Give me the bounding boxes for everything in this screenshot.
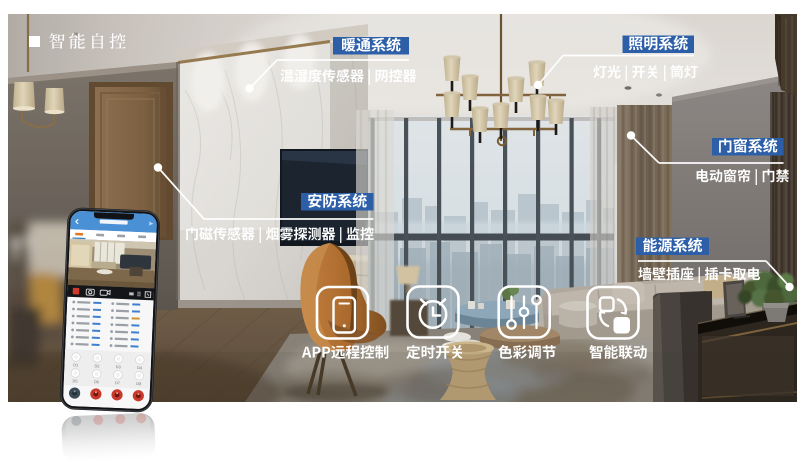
svg-text:D3: D3 [116, 364, 121, 369]
svg-text:D2: D2 [94, 363, 99, 368]
svg-text:D8: D8 [136, 381, 141, 386]
svg-text:D7: D7 [115, 380, 120, 385]
svg-text:D1: D1 [73, 362, 78, 367]
svg-text:D5: D5 [73, 378, 78, 383]
svg-text:D6: D6 [94, 379, 99, 384]
